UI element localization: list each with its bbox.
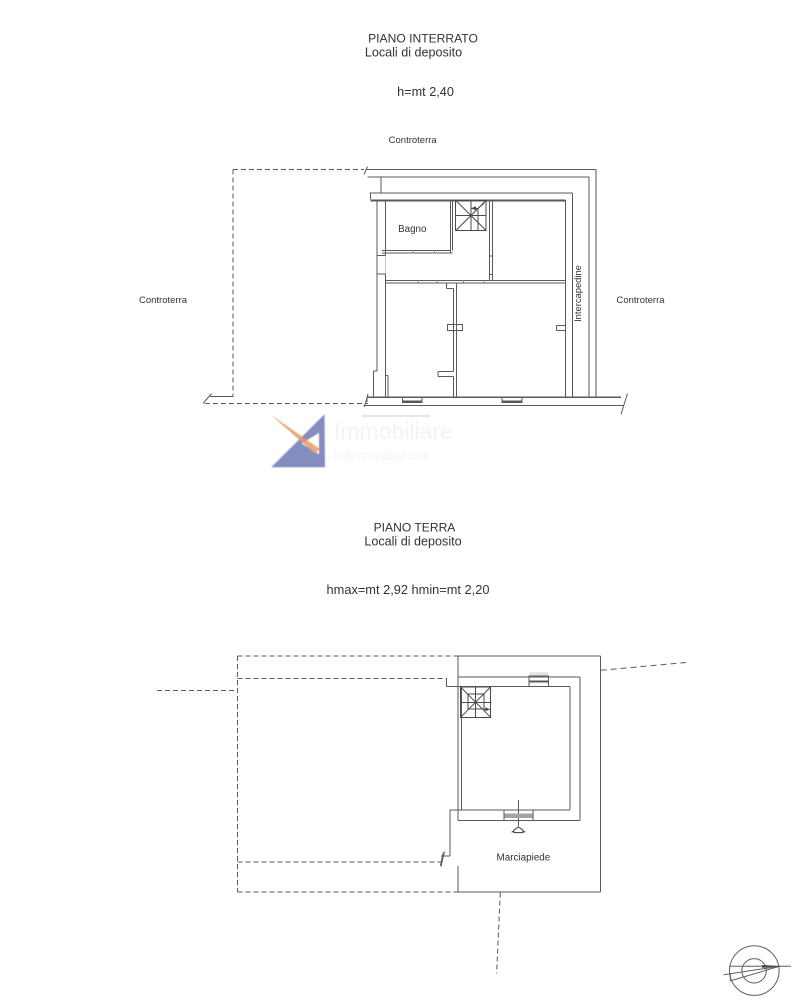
svg-text:Intercapedine: Intercapedine	[572, 265, 583, 322]
svg-text:Immobiliare: Immobiliare	[334, 418, 453, 444]
svg-text:Intermediazioni: Intermediazioni	[334, 447, 429, 463]
svg-text:Controterra: Controterra	[616, 295, 665, 306]
svg-text:Bagno: Bagno	[398, 224, 427, 235]
svg-text:Marciapiede: Marciapiede	[497, 853, 551, 864]
svg-text:h=mt 2,40: h=mt 2,40	[397, 85, 454, 99]
svg-text:PIANO INTERRATO: PIANO INTERRATO	[368, 32, 478, 46]
svg-text:Locali di deposito: Locali di deposito	[364, 535, 461, 549]
svg-text:Controterra: Controterra	[389, 135, 438, 146]
svg-text:Controterra: Controterra	[139, 295, 188, 306]
svg-text:hmax=mt 2,92 hmin=mt 2,20: hmax=mt 2,92 hmin=mt 2,20	[327, 582, 490, 597]
svg-text:PIANO TERRA: PIANO TERRA	[374, 521, 457, 535]
svg-text:Locali di deposito: Locali di deposito	[365, 46, 462, 60]
